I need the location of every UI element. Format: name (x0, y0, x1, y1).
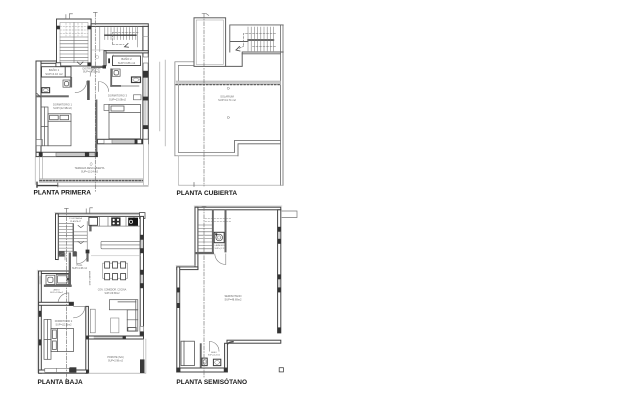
svg-text:ASEO: ASEO (211, 351, 217, 354)
svg-text:ASEO: ASEO (53, 288, 59, 291)
svg-text:TERRAZA DESCUBIERTA: TERRAZA DESCUBIERTA (75, 167, 105, 170)
svg-text:LAVADERO: LAVADERO (214, 244, 225, 247)
svg-text:SUP=41.74 m2: SUP=41.74 m2 (218, 98, 236, 102)
svg-text:SUP=48.69m2: SUP=48.69m2 (225, 297, 242, 301)
svg-text:SUP=13.24 m2: SUP=13.24 m2 (81, 171, 99, 174)
svg-text:SEMISOTANO: SEMISOTANO (224, 294, 241, 298)
svg-text:DORMITORIO 3: DORMITORIO 3 (108, 94, 128, 98)
svg-text:SUP=13.08m2: SUP=13.08m2 (109, 97, 126, 101)
svg-text:SUP=(2.2)m2: SUP=(2.2)m2 (208, 355, 221, 357)
svg-text:PLANTA BAJA: PLANTA BAJA (38, 379, 83, 386)
svg-text:CON. COMEDOR. COCINA: CON. COMEDOR. COCINA (98, 289, 127, 292)
svg-text:SUP=1.98m2: SUP=1.98m2 (50, 292, 64, 294)
svg-text:SUP=(1.70): SUP=(1.70) (215, 248, 226, 250)
svg-text:PLANTA PRIMERA: PLANTA PRIMERA (34, 190, 92, 197)
svg-text:SUP=(12.98m2): SUP=(12.98m2) (53, 106, 72, 110)
svg-text:ARMARIO EMP.: ARMARIO EMP. (88, 271, 91, 286)
svg-text:SUP=4.10 m2: SUP=4.10 m2 (45, 72, 63, 76)
svg-text:SUP=2.98 m2: SUP=2.98 m2 (108, 360, 124, 363)
svg-text:DORMITORIO 1: DORMITORIO 1 (53, 103, 73, 107)
svg-text:PLANTA CUBIERTA: PLANTA CUBIERTA (177, 190, 238, 197)
svg-text:SUP=(12.3)m2: SUP=(12.3)m2 (56, 323, 73, 326)
svg-text:SUP=4.38 m2: SUP=4.38 m2 (72, 267, 88, 270)
svg-text:PLANTA 1ª: PLANTA 1ª (70, 220, 81, 223)
svg-text:SUP=3.86 m2: SUP=3.86 m2 (118, 61, 136, 65)
svg-text:SUP=29.59m2: SUP=29.59m2 (104, 293, 120, 295)
svg-text:SOLARIUM: SOLARIUM (220, 95, 234, 99)
svg-text:PLANTA SEMISÓTANO: PLANTA SEMISÓTANO (176, 377, 247, 386)
svg-text:PORCHE (S/A): PORCHE (S/A) (107, 356, 124, 359)
svg-text:P. ENTRADA: P. ENTRADA (69, 217, 82, 220)
